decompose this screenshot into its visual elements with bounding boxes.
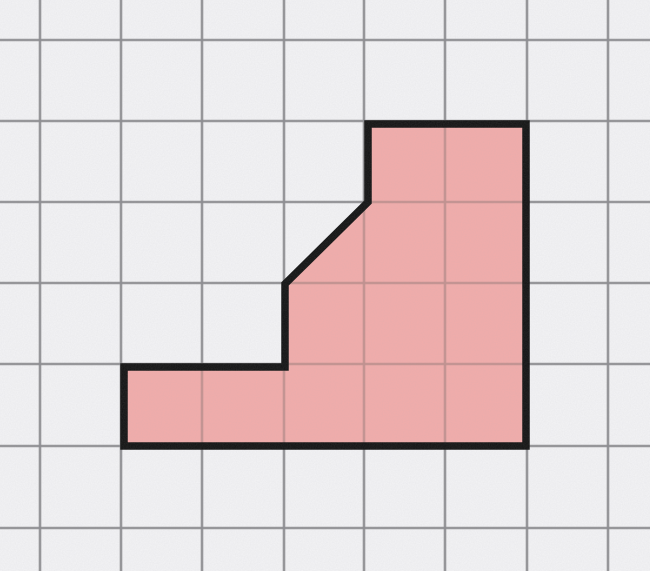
- paper-texture-overlay: [0, 0, 650, 571]
- worksheet-figure: [0, 0, 650, 571]
- grid-paper-figure: [0, 0, 650, 571]
